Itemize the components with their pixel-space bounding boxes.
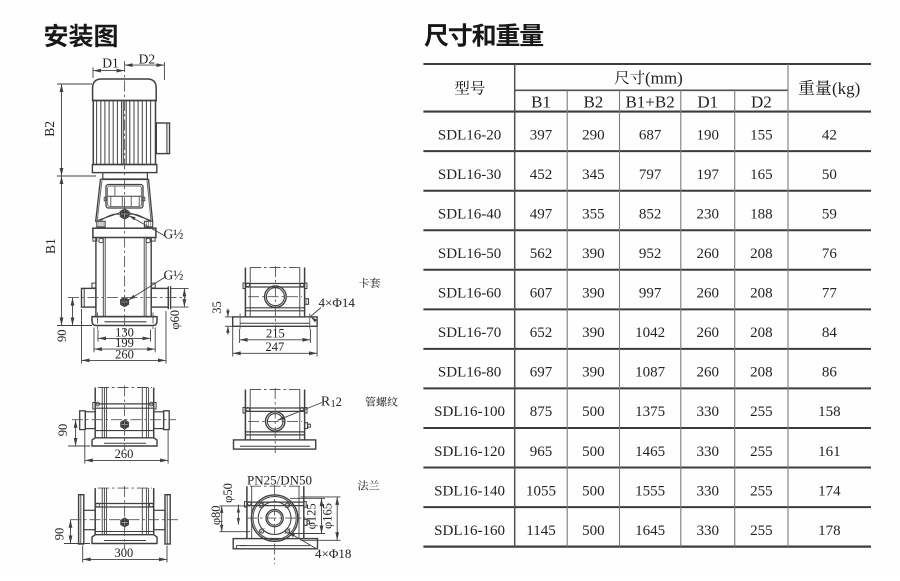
svg-text:4×Φ18: 4×Φ18 [315, 546, 351, 561]
svg-text:SDL16-80: SDL16-80 [438, 365, 501, 381]
svg-text:188: 188 [750, 207, 773, 223]
svg-text:500: 500 [582, 404, 605, 420]
svg-text:φ50: φ50 [221, 483, 235, 503]
svg-text:965: 965 [530, 444, 553, 460]
svg-text:2: 2 [336, 395, 342, 409]
svg-text:1087: 1087 [635, 365, 666, 381]
svg-text:SDL16-100: SDL16-100 [434, 404, 505, 420]
svg-text:852: 852 [639, 207, 662, 223]
svg-text:330: 330 [697, 483, 720, 499]
svg-text:197: 197 [697, 167, 720, 183]
svg-text:330: 330 [697, 444, 720, 460]
svg-text:208: 208 [750, 246, 773, 262]
svg-text:345: 345 [582, 167, 605, 183]
svg-text:G½: G½ [164, 268, 184, 283]
svg-text:(mm): (mm) [645, 68, 683, 87]
svg-text:SDL16-40: SDL16-40 [438, 207, 501, 223]
svg-text:PN25/DN50: PN25/DN50 [247, 472, 312, 487]
svg-text:35: 35 [210, 301, 224, 314]
svg-text:D2: D2 [139, 51, 156, 66]
svg-text:59: 59 [822, 207, 837, 223]
svg-text:1145: 1145 [526, 523, 555, 539]
svg-text:φ80: φ80 [209, 505, 223, 525]
svg-text:(kg): (kg) [832, 79, 860, 98]
svg-text:90: 90 [56, 424, 70, 437]
svg-text:SDL16-160: SDL16-160 [434, 523, 505, 539]
svg-text:1465: 1465 [635, 444, 665, 460]
svg-text:562: 562 [530, 246, 553, 262]
svg-text:84: 84 [822, 325, 838, 341]
svg-text:φ60: φ60 [168, 310, 182, 330]
svg-text:290: 290 [582, 127, 605, 143]
svg-text:500: 500 [582, 483, 605, 499]
svg-text:355: 355 [582, 207, 605, 223]
svg-text:155: 155 [750, 127, 773, 143]
svg-text:300: 300 [115, 546, 134, 560]
svg-text:1375: 1375 [635, 404, 665, 420]
svg-text:φ125: φ125 [304, 503, 318, 529]
svg-text:390: 390 [582, 365, 605, 381]
svg-text:161: 161 [818, 444, 841, 460]
svg-text:B2: B2 [583, 92, 603, 111]
svg-text:B2: B2 [42, 121, 57, 137]
svg-text:1555: 1555 [635, 483, 665, 499]
svg-text:255: 255 [750, 523, 773, 539]
svg-text:497: 497 [530, 207, 553, 223]
svg-text:SDL16-20: SDL16-20 [438, 127, 501, 143]
svg-text:77: 77 [822, 286, 838, 302]
svg-text:260: 260 [697, 286, 720, 302]
svg-text:390: 390 [582, 325, 605, 341]
svg-text:390: 390 [582, 246, 605, 262]
svg-text:76: 76 [822, 246, 838, 262]
svg-text:260: 260 [697, 325, 720, 341]
svg-text:90: 90 [53, 528, 67, 541]
svg-text:174: 174 [818, 483, 841, 499]
svg-text:797: 797 [639, 167, 662, 183]
svg-text:260: 260 [697, 246, 720, 262]
svg-text:500: 500 [582, 523, 605, 539]
svg-text:190: 190 [697, 127, 720, 143]
svg-text:B1: B1 [531, 92, 551, 111]
svg-text:330: 330 [697, 523, 720, 539]
svg-text:178: 178 [818, 523, 841, 539]
svg-text:500: 500 [582, 444, 605, 460]
svg-text:SDL16-70: SDL16-70 [438, 325, 501, 341]
svg-text:260: 260 [115, 447, 134, 461]
svg-text:D1: D1 [102, 55, 119, 70]
svg-text:208: 208 [750, 365, 773, 381]
svg-text:997: 997 [639, 286, 662, 302]
svg-text:697: 697 [530, 365, 553, 381]
svg-text:B1: B1 [43, 238, 58, 254]
svg-text:397: 397 [530, 127, 553, 143]
svg-text:1645: 1645 [635, 523, 665, 539]
svg-text:330: 330 [697, 404, 720, 420]
svg-text:687: 687 [639, 127, 662, 143]
svg-text:4×Φ14: 4×Φ14 [319, 295, 356, 310]
svg-text:φ165: φ165 [320, 503, 334, 529]
svg-text:G½: G½ [164, 227, 184, 242]
svg-text:260: 260 [697, 365, 720, 381]
svg-text:D1: D1 [697, 92, 718, 111]
svg-text:1042: 1042 [635, 325, 665, 341]
svg-text:50: 50 [822, 167, 837, 183]
svg-text:165: 165 [750, 167, 773, 183]
svg-text:SDL16-60: SDL16-60 [438, 286, 501, 302]
svg-text:R: R [321, 394, 331, 409]
svg-text:875: 875 [530, 404, 553, 420]
svg-text:215: 215 [266, 327, 285, 341]
svg-text:952: 952 [639, 246, 662, 262]
svg-text:SDL16-50: SDL16-50 [438, 246, 501, 262]
svg-text:255: 255 [750, 404, 773, 420]
svg-text:86: 86 [822, 365, 838, 381]
svg-text:255: 255 [750, 444, 773, 460]
svg-text:B1+B2: B1+B2 [625, 92, 674, 111]
svg-text:230: 230 [697, 207, 720, 223]
svg-text:SDL16-30: SDL16-30 [438, 167, 501, 183]
svg-text:90: 90 [55, 330, 69, 343]
svg-text:208: 208 [750, 286, 773, 302]
svg-text:1055: 1055 [526, 483, 556, 499]
svg-text:390: 390 [582, 286, 605, 302]
svg-text:SDL16-120: SDL16-120 [434, 444, 505, 460]
svg-text:247: 247 [266, 340, 285, 354]
svg-text:42: 42 [822, 127, 837, 143]
svg-text:452: 452 [530, 167, 553, 183]
svg-text:607: 607 [530, 286, 553, 302]
svg-text:158: 158 [818, 404, 841, 420]
svg-text:255: 255 [750, 483, 773, 499]
svg-text:SDL16-140: SDL16-140 [434, 483, 505, 499]
svg-text:652: 652 [530, 325, 553, 341]
svg-text:208: 208 [750, 325, 773, 341]
svg-text:D2: D2 [751, 92, 772, 111]
svg-text:260: 260 [115, 347, 134, 361]
